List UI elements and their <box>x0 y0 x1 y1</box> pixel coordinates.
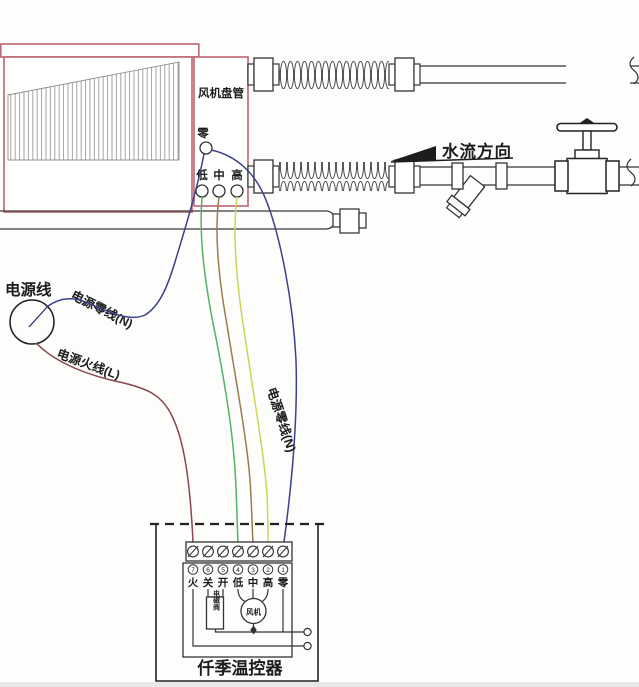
flexible-hose-1 <box>279 61 389 90</box>
terminal-num: 2 <box>266 567 270 574</box>
speed-high-label: 高 <box>231 168 243 182</box>
neutral-terminal-label: 零 <box>196 127 209 140</box>
terminal-label: 零 <box>277 577 289 589</box>
flexible-hose-2 <box>279 162 389 191</box>
speed-mid-terminal <box>213 185 225 197</box>
terminal-num: 1 <box>281 567 285 574</box>
speed-low-label: 低 <box>195 168 208 182</box>
shutoff-valve-2 <box>555 118 619 194</box>
neutral-terminal <box>200 142 212 154</box>
speed-high-terminal <box>231 185 243 197</box>
thermostat: 7 6 5 4 3 2 1 火 关 开 低 中 高 零 <box>150 524 324 681</box>
power-label: 电源线 <box>5 280 52 299</box>
output-terminal <box>304 628 311 635</box>
hose-fitting <box>389 58 420 91</box>
terminal-num: 5 <box>221 567 225 574</box>
pipe-break-symbol <box>630 57 638 84</box>
hose-fitting <box>389 160 420 193</box>
return-pipe-run <box>248 118 639 220</box>
thermostat-name: 仟季温控器 <box>197 658 284 678</box>
speed-low-terminal <box>196 185 208 197</box>
terminal-num: 3 <box>251 567 255 574</box>
pipe-segment <box>420 66 566 83</box>
output-terminal <box>304 642 311 649</box>
pipe-break-symbol <box>627 159 635 186</box>
power-source: 电源线 电源零线(N) 电源火线(L) <box>5 280 135 382</box>
wire-neutral-to-thermostat <box>211 150 296 542</box>
pipe-segment <box>420 167 555 185</box>
terminal-label: 关 <box>203 576 214 589</box>
terminal-strip <box>186 542 292 561</box>
terminal-label: 高 <box>263 576 274 589</box>
terminal-label: 中 <box>248 576 259 589</box>
terminal-label: 低 <box>232 576 244 589</box>
flow-direction-label: 水流方向 <box>442 141 512 161</box>
terminal-label: 火 <box>188 577 199 589</box>
hose-fitting <box>248 58 279 91</box>
terminal-num: 7 <box>191 567 195 574</box>
flow-arrow-icon <box>391 146 436 161</box>
numbered-terminals: 7 6 5 4 3 2 1 火 关 开 低 中 高 零 <box>188 565 289 589</box>
y-strainer <box>444 163 507 220</box>
diagram-canvas: 风机盘管 零 低 中 高 <box>0 0 639 687</box>
power-lead <box>29 306 48 327</box>
wire-high-speed <box>235 197 268 542</box>
bottom-strip <box>0 682 639 687</box>
wire-low-speed <box>201 197 238 542</box>
terminal-num: 6 <box>206 567 210 574</box>
terminal-label: 开 <box>218 577 229 589</box>
wiring-diagram: 风机盘管 零 低 中 高 <box>0 0 639 687</box>
terminal-num: 4 <box>236 567 240 574</box>
unit-top-cap <box>1 44 199 57</box>
speed-mid-label: 中 <box>213 168 225 182</box>
wire-junction-diamond <box>250 626 257 635</box>
flow-direction: 水流方向 <box>391 141 513 162</box>
fan-coil-label: 风机盘管 <box>198 86 244 100</box>
fan-coil-unit: 风机盘管 零 低 中 高 <box>1 44 248 212</box>
fan-motor-label: 风机 <box>246 607 261 617</box>
neutral-wire-label-2: 电源零线(N) <box>264 385 299 454</box>
